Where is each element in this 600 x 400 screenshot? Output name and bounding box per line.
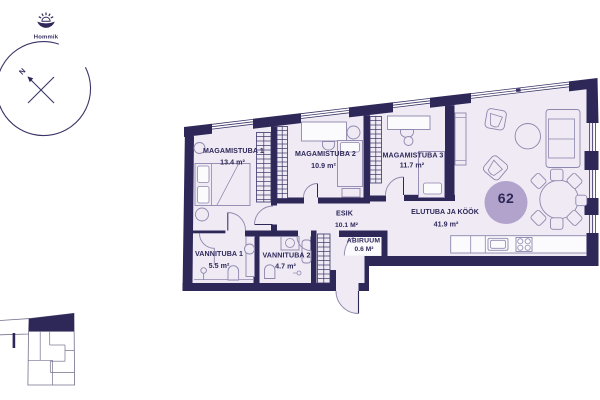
svg-text:MAGAMISTUBA 1: MAGAMISTUBA 1 — [203, 147, 264, 155]
svg-text:MAGAMISTUBA 3: MAGAMISTUBA 3 — [383, 152, 444, 160]
svg-text:4.7 m²: 4.7 m² — [275, 263, 296, 271]
svg-text:VANNITUBA 2: VANNITUBA 2 — [263, 252, 311, 260]
svg-text:62: 62 — [498, 190, 515, 206]
svg-text:0.6 M²: 0.6 M² — [355, 246, 375, 253]
svg-text:10.1 M²: 10.1 M² — [335, 222, 359, 229]
svg-text:ESIK: ESIK — [336, 210, 354, 218]
svg-text:VANNITUBA 1: VANNITUBA 1 — [195, 250, 243, 258]
svg-text:13.4 m²: 13.4 m² — [220, 158, 245, 166]
svg-text:ABIRUUM: ABIRUUM — [347, 237, 381, 244]
svg-text:5.5 m²: 5.5 m² — [209, 262, 230, 270]
svg-text:11.7 m²: 11.7 m² — [400, 161, 425, 169]
svg-text:MAGAMISTUBA 2: MAGAMISTUBA 2 — [295, 150, 356, 158]
svg-text:41.9 m²: 41.9 m² — [434, 220, 459, 228]
svg-text:ELUTUBA JA KÖÖK: ELUTUBA JA KÖÖK — [411, 207, 480, 216]
svg-text:Hommik: Hommik — [34, 35, 59, 41]
svg-text:10.9 m²: 10.9 m² — [311, 162, 336, 170]
